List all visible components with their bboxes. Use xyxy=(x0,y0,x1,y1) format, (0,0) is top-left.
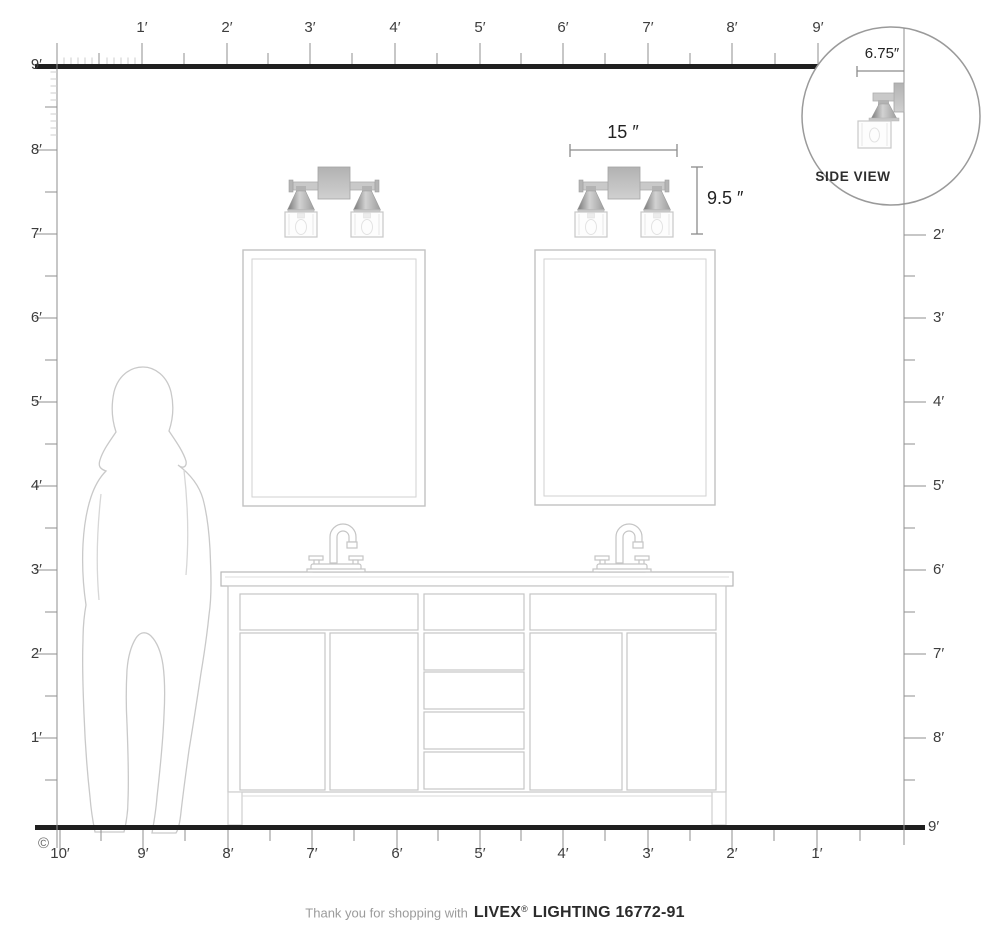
ruler-label-left: 2′ xyxy=(4,645,42,662)
ruler-label-bottom: 5′ xyxy=(474,845,485,862)
ruler-label-top: 7′ xyxy=(642,19,653,36)
side-projection-dimension: 6.75″ xyxy=(865,45,900,62)
fixture-width-dimension: 15 ″ xyxy=(607,122,638,143)
ruler-label-right: 5′ xyxy=(933,477,944,494)
drawer xyxy=(424,633,524,670)
ruler-label-bottom: 4′ xyxy=(557,845,568,862)
ruler-label-bottom: 8′ xyxy=(222,845,233,862)
ruler-label-bottom: 2′ xyxy=(726,845,737,862)
ruler-label-right: 7′ xyxy=(933,645,944,662)
diagram-canvas xyxy=(0,0,990,952)
ruler-label-left: 1′ xyxy=(4,729,42,746)
mirrors xyxy=(243,250,715,506)
drawer xyxy=(424,712,524,749)
cabinet-door xyxy=(330,633,418,790)
ruler-label-bottom: 3′ xyxy=(642,845,653,862)
footer-model-number: LIGHTING 16772-91 xyxy=(533,904,685,921)
right-faucet xyxy=(593,524,651,572)
ruler-label-left: 6′ xyxy=(4,309,42,326)
drawer xyxy=(424,672,524,709)
registered-trademark: ® xyxy=(521,904,528,914)
ruler-label-left: 3′ xyxy=(4,561,42,578)
ruler-label-right: 4′ xyxy=(933,393,944,410)
countertop xyxy=(221,572,733,586)
ruler-label-left: 9′ xyxy=(4,56,42,73)
ruler-label-left: 8′ xyxy=(4,141,42,158)
ruler-label-top: 4′ xyxy=(389,19,400,36)
footer-brand: LIVEX xyxy=(474,904,521,921)
ruler-label-right: 3′ xyxy=(933,309,944,326)
ruler-label-bottom: 1′ xyxy=(811,845,822,862)
ruler-label-bottom: 10′ xyxy=(50,845,70,862)
cabinet-door xyxy=(627,633,716,790)
person-silhouette xyxy=(83,367,211,833)
cabinet-door xyxy=(530,633,622,790)
ruler-label-left: 7′ xyxy=(4,225,42,242)
ruler-label-bottom: 6′ xyxy=(391,845,402,862)
ruler-label-right: 6′ xyxy=(933,561,944,578)
cabinet-door xyxy=(240,633,325,790)
ruler-label-top: 1′ xyxy=(136,19,147,36)
faucets xyxy=(307,524,651,572)
ruler-label-top: 3′ xyxy=(304,19,315,36)
ruler-label-top: 8′ xyxy=(726,19,737,36)
ruler-label-bottom: 7′ xyxy=(306,845,317,862)
ruler-label-bottom: 9′ xyxy=(137,845,148,862)
ruler-label-top: 6′ xyxy=(557,19,568,36)
dimension-diagram: 1′ 2′ 3′ 4′ 5′ 6′ 7′ 8′ 9′ 9′ 8′ 7′ 6′ 5… xyxy=(0,0,990,952)
ruler-label-right: 8′ xyxy=(933,729,944,746)
ruler-label-top: 2′ xyxy=(221,19,232,36)
left-faucet xyxy=(307,524,365,572)
ruler-label-left: 5′ xyxy=(4,393,42,410)
ruler-label-top: 9′ xyxy=(812,19,823,36)
fixture-height-dimension: 9.5 ″ xyxy=(707,188,743,209)
footer-thanks-text: Thank you for shopping with xyxy=(305,905,468,920)
drawer xyxy=(424,752,524,789)
right-vanity-light xyxy=(575,167,673,237)
left-vanity-light xyxy=(285,167,383,237)
vanity-cabinet xyxy=(221,572,733,825)
ruler-label-right-floor: 9′ xyxy=(928,818,939,835)
side-view-caption: SIDE VIEW xyxy=(815,169,890,184)
ruler-label-left: 4′ xyxy=(4,477,42,494)
ruler-label-right: 2′ xyxy=(933,226,944,243)
footer: Thank you for shopping withLIVEX®LIGHTIN… xyxy=(0,904,990,922)
ruler-label-top: 5′ xyxy=(474,19,485,36)
copyright-symbol: © xyxy=(38,835,49,852)
